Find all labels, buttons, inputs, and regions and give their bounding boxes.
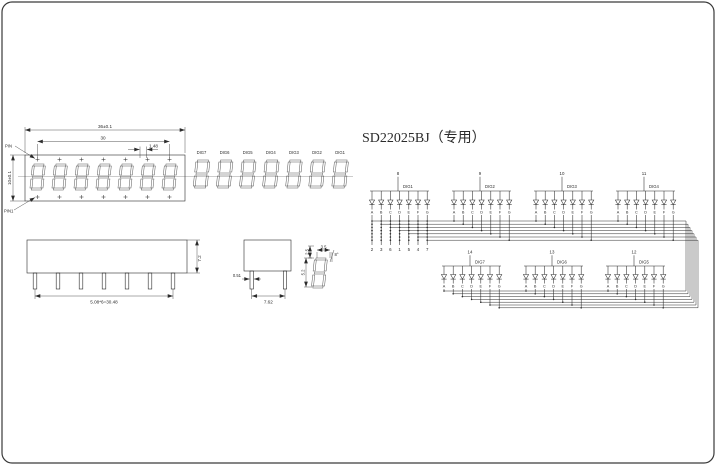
segment-letter: G: [498, 285, 501, 289]
digit-label: DIG2: [312, 150, 322, 155]
segment-letter: E: [572, 211, 575, 215]
segment-letter: D: [634, 285, 637, 289]
segment-letter: B: [544, 211, 547, 215]
digit-group-label: DIG3: [567, 184, 577, 189]
segment-letter: D: [480, 211, 483, 215]
digit-label: DIG3: [289, 150, 299, 155]
segment-letter: A: [617, 211, 620, 215]
segment-letter: E: [644, 285, 647, 289]
dim-pin-span: 5.08*6=30.48: [90, 300, 118, 305]
segment-letter: C: [635, 211, 638, 215]
segment-letter: E: [654, 211, 657, 215]
datasheet-page: SD22025BJ（专用） 36±0.1 30 1.48 10±0.1 PIN …: [0, 0, 716, 465]
segment-letter: E: [562, 285, 565, 289]
digit-pin-number: 12: [632, 250, 637, 255]
segment-letter: G: [580, 285, 583, 289]
digit-group-label: DIG1: [403, 184, 413, 189]
segment-letter: D: [552, 285, 555, 289]
digit-pin-number: 13: [550, 250, 555, 255]
digit-label: DIG1: [335, 150, 345, 155]
digit-group-label: DIG4: [649, 184, 659, 189]
segment-letter: C: [625, 285, 628, 289]
segment-letter: B: [462, 211, 465, 215]
datasheet-drawing: SD22025BJ（专用） 36±0.1 30 1.48 10±0.1 PIN …: [0, 0, 716, 465]
segment-letter: D: [644, 211, 647, 215]
dim-body-height: 7.2: [197, 255, 202, 262]
segment-letter: A: [443, 285, 446, 289]
dim-glyph-slant: 8°: [335, 252, 339, 257]
digit-label: DIG7: [197, 150, 207, 155]
digit-pin-number: 11: [642, 171, 647, 176]
segment-letter: E: [408, 211, 411, 215]
part-number-title: SD22025BJ（专用）: [362, 130, 486, 146]
segment-letter: D: [398, 211, 401, 215]
segment-letter: A: [607, 285, 610, 289]
digit-group-label: DIG6: [557, 260, 567, 265]
segment-letter: A: [535, 211, 538, 215]
segment-letter: G: [662, 285, 665, 289]
segment-letter: E: [490, 211, 493, 215]
digit-group-label: DIG5: [639, 260, 649, 265]
segment-letter: E: [480, 285, 483, 289]
segment-letter: A: [525, 285, 528, 289]
segment-letter: A: [453, 211, 456, 215]
segment-letter: C: [543, 285, 546, 289]
dim-dp-offset: 1.48: [149, 144, 158, 149]
segment-letter: A: [371, 211, 374, 215]
segment-letter: C: [389, 211, 392, 215]
segment-letter: B: [616, 285, 619, 289]
dim-glyph-height: 5.2: [301, 269, 306, 275]
digit-pin-number: 14: [468, 250, 473, 255]
segment-letter: G: [508, 211, 511, 215]
digit-pin-number: 10: [560, 171, 565, 176]
segment-letter: G: [672, 211, 675, 215]
segment-letter: B: [626, 211, 629, 215]
segment-letter: G: [426, 211, 429, 215]
digit-label: DIG4: [266, 150, 276, 155]
page-border: [2, 2, 714, 463]
digit-group-label: DIG2: [485, 184, 495, 189]
segment-letter: C: [461, 285, 464, 289]
segment-letter: B: [534, 285, 537, 289]
segment-letter: C: [553, 211, 556, 215]
dim-total-width: 36±0.1: [98, 124, 112, 129]
dim-inner-width: 30: [100, 136, 106, 141]
digit-label: DIG6: [220, 150, 230, 155]
segment-letter: D: [562, 211, 565, 215]
dim-body-width: 7.62: [264, 300, 273, 305]
dim-glyph-top-offset: 2.5: [305, 248, 310, 254]
segment-letter: C: [471, 211, 474, 215]
callout-bottom-label: PIN1: [4, 209, 14, 214]
segment-letter: B: [380, 211, 383, 215]
segment-letter: B: [452, 285, 455, 289]
segment-letter: G: [590, 211, 593, 215]
dim-pin-width: 0.51: [233, 273, 242, 278]
digit-group-label: DIG7: [475, 260, 485, 265]
digit-label: DIG5: [243, 150, 253, 155]
dim-glyph-width: 3.5: [321, 245, 327, 250]
callout-top-label: PIN: [5, 144, 12, 149]
segment-letter: D: [470, 285, 473, 289]
dim-face-height: 10±0.1: [7, 171, 12, 185]
